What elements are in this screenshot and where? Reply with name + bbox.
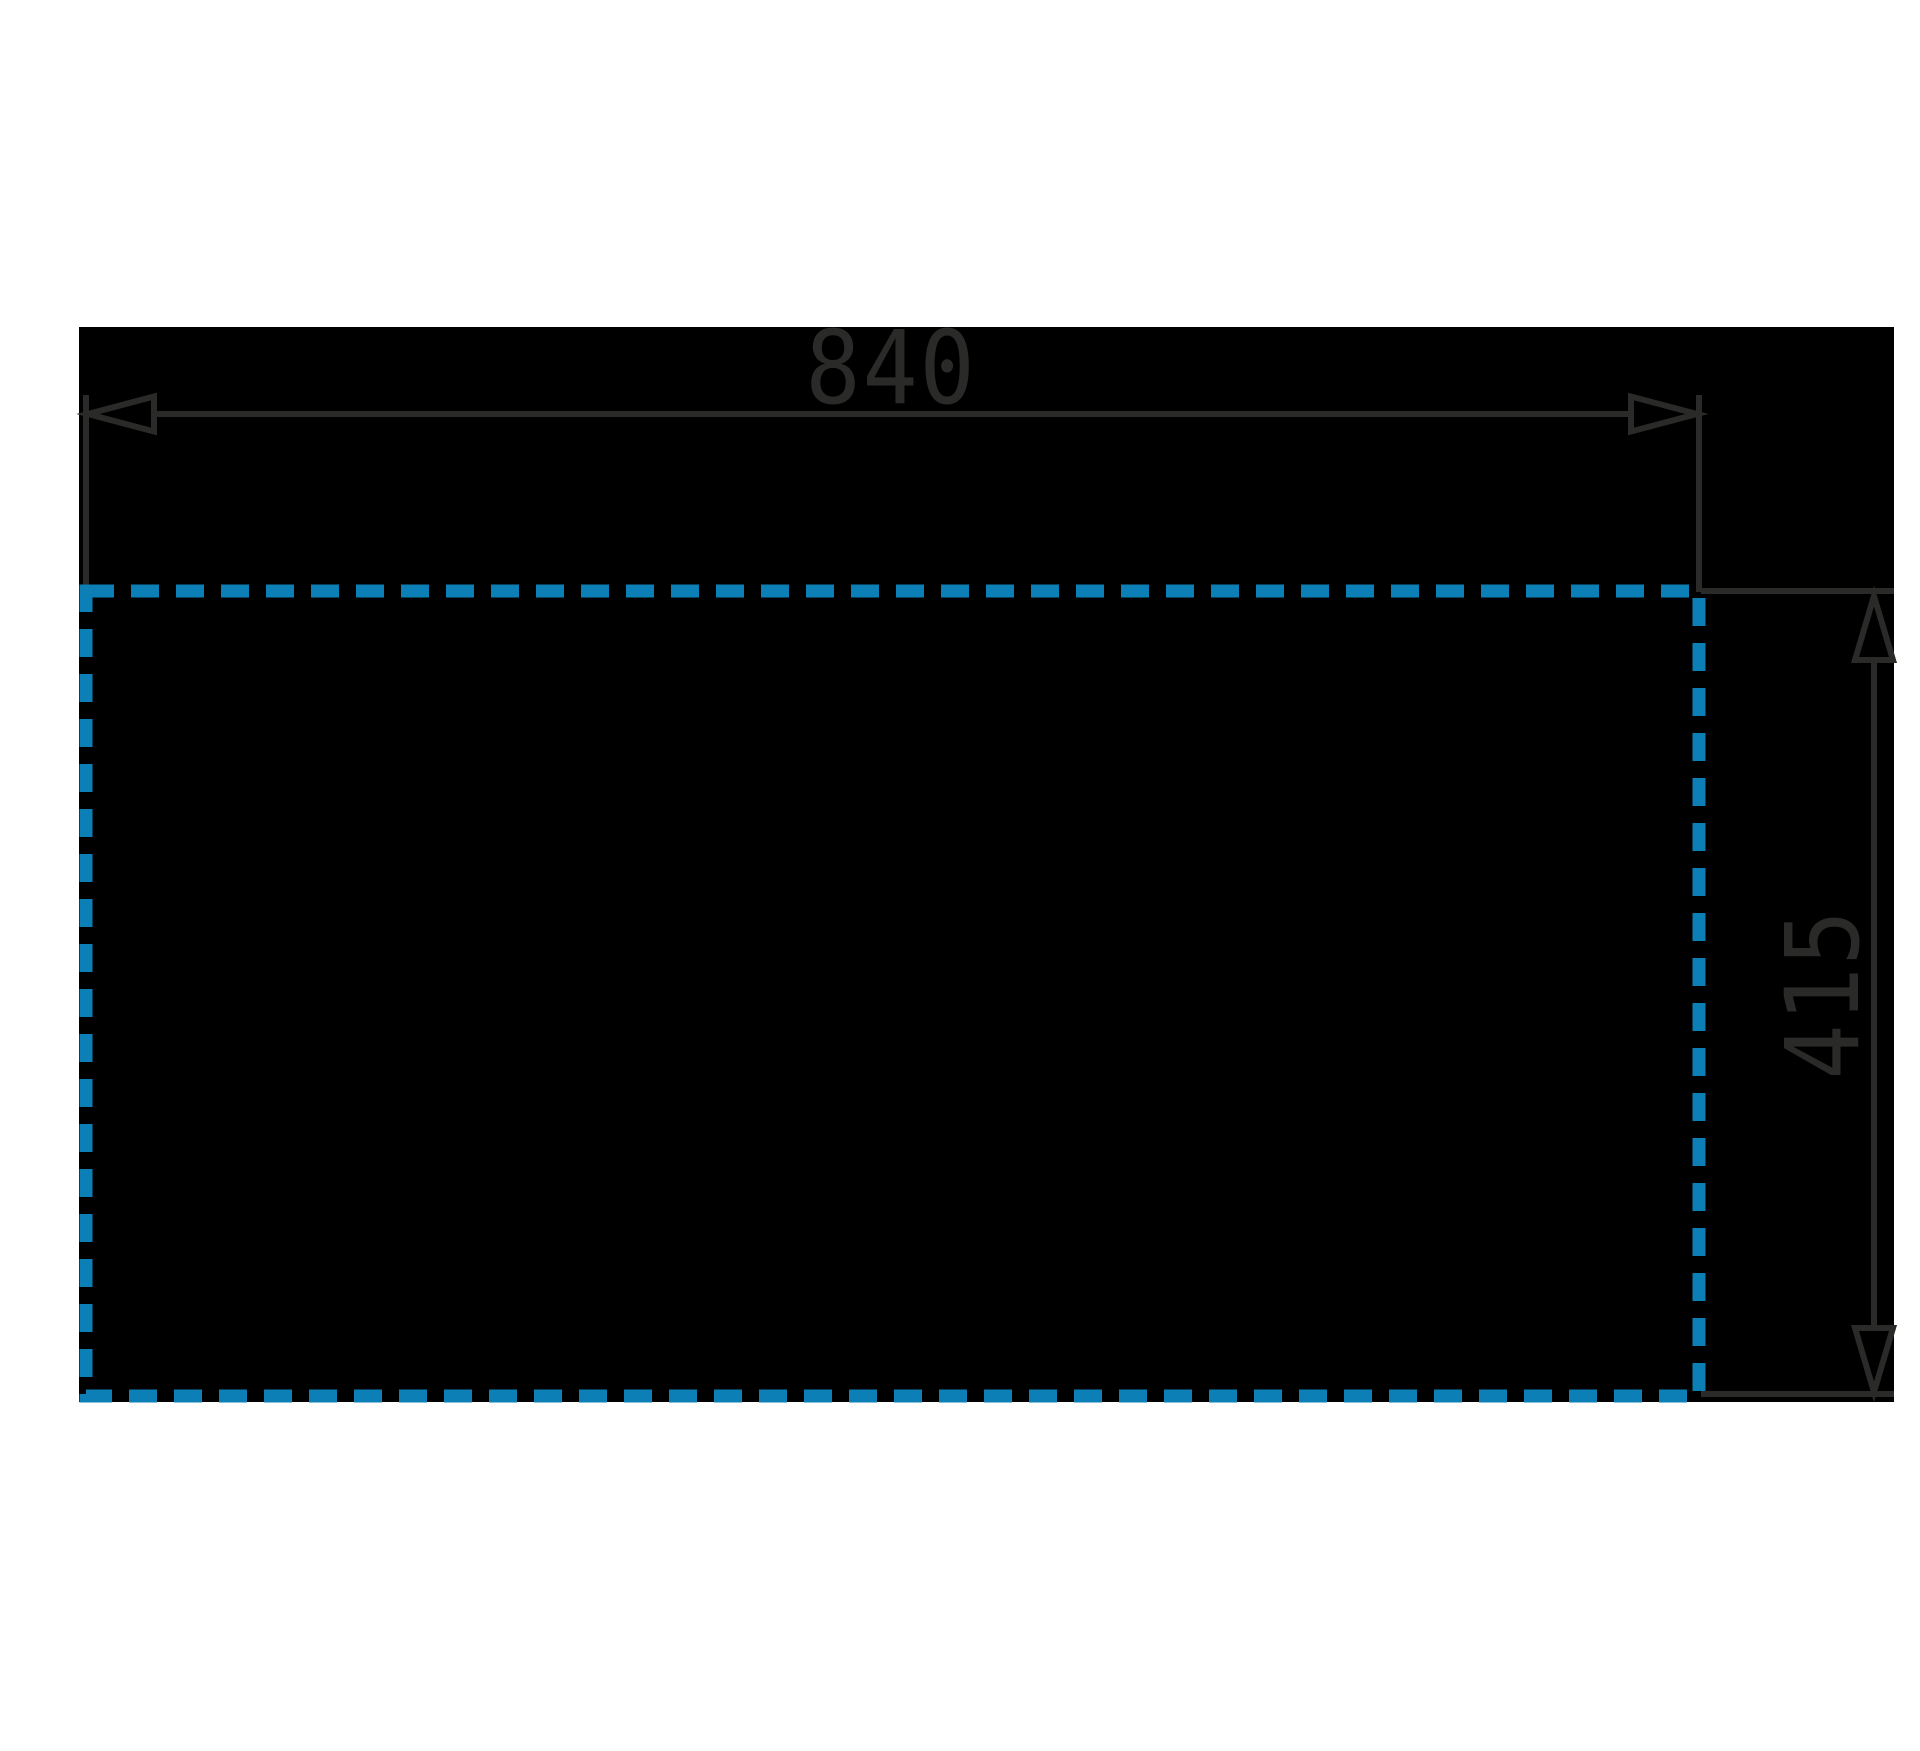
product-silhouette xyxy=(79,327,1894,1402)
width-dimension-label: 840 xyxy=(805,308,976,427)
drawing-canvas: 840 415 xyxy=(0,0,1920,1751)
height-dimension-label: 415 xyxy=(1763,908,1882,1079)
dimension-diagram: 840 415 xyxy=(0,0,1920,1751)
